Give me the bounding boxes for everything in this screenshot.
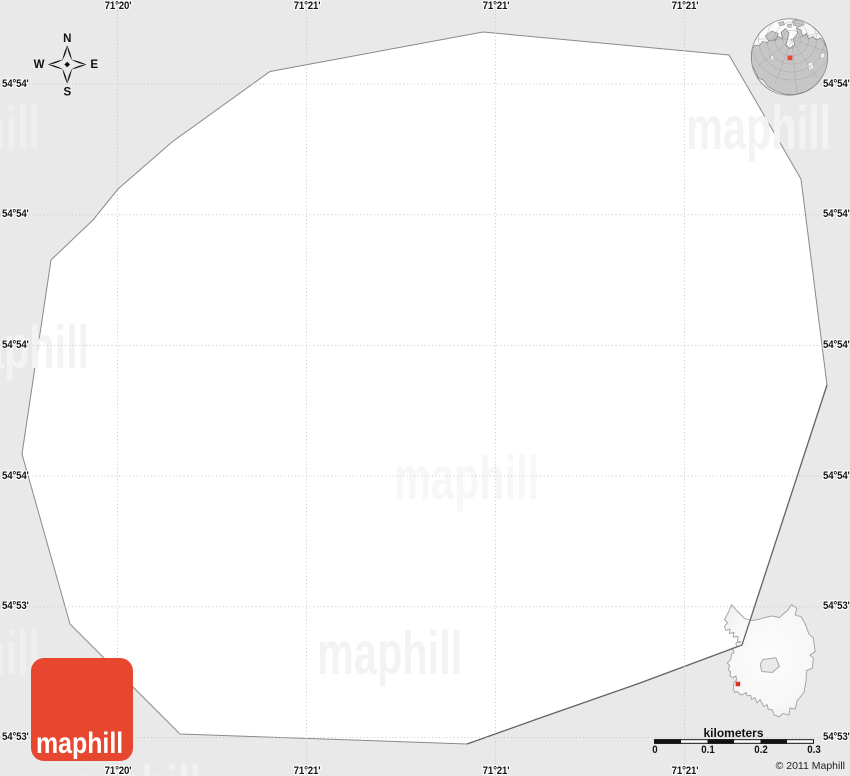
svg-text:S: S	[63, 86, 71, 98]
svg-text:N: N	[63, 33, 71, 45]
svg-text:W: W	[34, 59, 45, 71]
svg-text:E: E	[90, 59, 98, 71]
